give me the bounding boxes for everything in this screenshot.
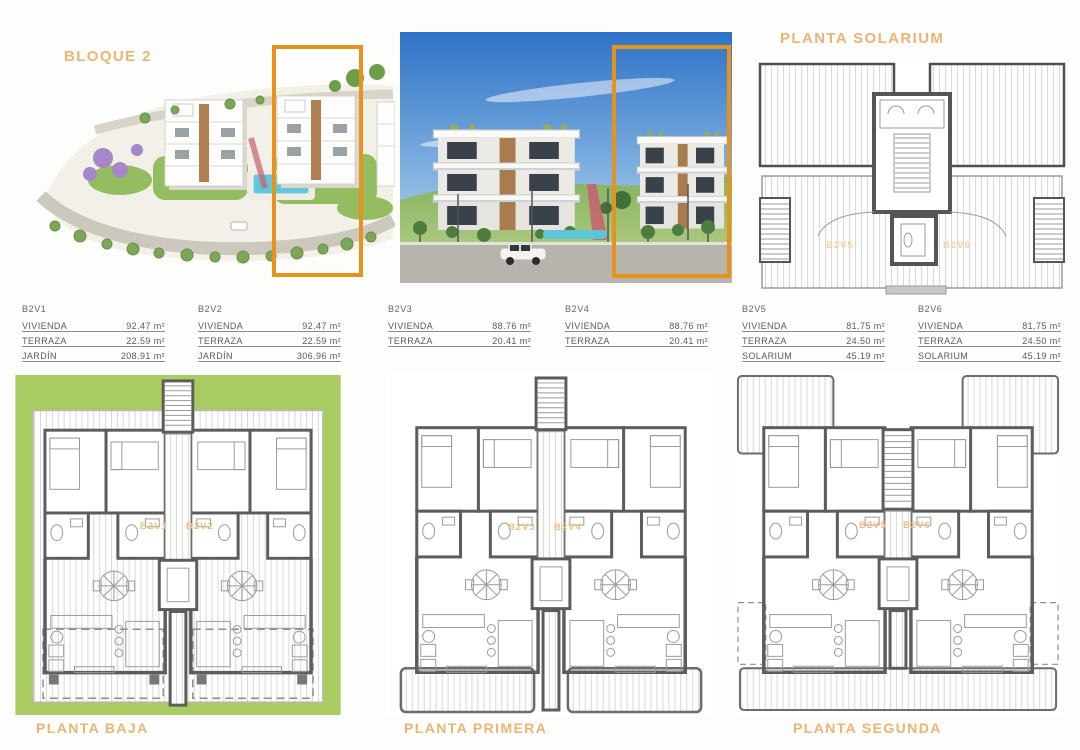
table-row-value: 45.19 m²: [846, 351, 885, 361]
solarium-plan-panel: B2V5 B2V6: [758, 58, 1066, 298]
unit-table-b2v2: B2V2VIVIENDA92.47 m²TERRAZA22.59 m²JARDÍ…: [198, 304, 341, 362]
unit-table-b2v6: B2V6VIVIENDA81.75 m²TERRAZA24.50 m²SOLAR…: [918, 304, 1061, 362]
table-row: VIVIENDA92.47 m²: [22, 317, 165, 332]
table-row: SOLARIUM45.19 m²: [918, 347, 1061, 362]
table-row: VIVIENDA88.76 m²: [565, 317, 708, 332]
floor-plan-segunda: B2V5 B2V6: [733, 372, 1063, 715]
table-row-label: VIVIENDA: [198, 321, 243, 331]
table-row: VIVIENDA81.75 m²: [742, 317, 885, 332]
table-row-value: 92.47 m²: [126, 321, 165, 331]
highlight-box-aerial: [272, 45, 363, 277]
table-row-label: TERRAZA: [742, 336, 787, 346]
table-row-value: 81.75 m²: [846, 321, 885, 331]
table-row: TERRAZA22.59 m²: [22, 332, 165, 347]
primera-unit-left: B2V3: [508, 522, 536, 533]
baja-unit-left: B2V1: [140, 521, 168, 532]
car: [231, 222, 247, 230]
table-row: VIVIENDA88.76 m²: [388, 317, 531, 332]
table-row-label: TERRAZA: [198, 336, 243, 346]
unit-table-header: B2V5: [742, 304, 885, 314]
plan-baja-title: PLANTA BAJA: [36, 720, 149, 736]
table-row-label: VIVIENDA: [918, 321, 963, 331]
floor-plan-baja: B2V1 B2V2: [14, 375, 342, 715]
unit-table-header: B2V3: [388, 304, 531, 314]
unit-table-b2v3: B2V3VIVIENDA88.76 m²TERRAZA20.41 m²: [388, 304, 531, 347]
table-row-label: VIVIENDA: [565, 321, 610, 331]
unit-table-b2v1: B2V1VIVIENDA92.47 m²TERRAZA22.59 m²JARDÍ…: [22, 304, 165, 362]
plan-primera-title: PLANTA PRIMERA: [404, 720, 547, 736]
table-row-label: VIVIENDA: [388, 321, 433, 331]
aerial-render: [25, 38, 395, 290]
table-row-label: JARDÍN: [198, 351, 233, 361]
solarium-title: PLANTA SOLARIUM: [780, 30, 944, 47]
table-row-label: TERRAZA: [22, 336, 67, 346]
table-row: JARDÍN306.96 m²: [198, 347, 341, 362]
table-row-value: 22.59 m²: [302, 336, 341, 346]
table-row-label: TERRAZA: [565, 336, 610, 346]
table-row-value: 81.75 m²: [1022, 321, 1061, 331]
table-row: TERRAZA24.50 m²: [742, 332, 885, 347]
table-row-value: 92.47 m²: [302, 321, 341, 331]
table-row: TERRAZA24.50 m²: [918, 332, 1061, 347]
table-row-value: 306.96 m²: [297, 351, 341, 361]
unit-table-header: B2V6: [918, 304, 1061, 314]
highlight-box-photo: [612, 45, 731, 278]
building-block-right-edge: [377, 102, 395, 186]
table-row-value: 45.19 m²: [1022, 351, 1061, 361]
table-row-label: VIVIENDA: [742, 321, 787, 331]
floor-plan-primera-drawing: [386, 372, 716, 715]
table-row: TERRAZA22.59 m²: [198, 332, 341, 347]
table-row-value: 88.76 m²: [492, 321, 531, 331]
building-left: [433, 124, 579, 230]
table-row-value: 24.50 m²: [846, 336, 885, 346]
table-row-value: 208.91 m²: [121, 351, 165, 361]
table-row-label: JARDÍN: [22, 351, 57, 361]
table-row: VIVIENDA81.75 m²: [918, 317, 1061, 332]
table-row: TERRAZA20.41 m²: [565, 332, 708, 347]
table-row: SOLARIUM45.19 m²: [742, 347, 885, 362]
table-row-label: SOLARIUM: [918, 351, 968, 361]
floor-plan-baja-drawing: [14, 375, 342, 715]
solarium-unit-left: B2V5: [826, 240, 854, 251]
table-row-label: SOLARIUM: [742, 351, 792, 361]
baja-unit-right: B2V2: [186, 521, 214, 532]
table-row-value: 20.41 m²: [492, 336, 531, 346]
street-render: [400, 32, 732, 283]
unit-table-b2v5: B2V5VIVIENDA81.75 m²TERRAZA24.50 m²SOLAR…: [742, 304, 885, 362]
solarium-unit-right: B2V6: [943, 240, 971, 251]
table-row-value: 20.41 m²: [669, 336, 708, 346]
table-row-value: 22.59 m²: [126, 336, 165, 346]
plan-segunda-title: PLANTA SEGUNDA: [793, 720, 942, 736]
table-row: JARDÍN208.91 m²: [22, 347, 165, 362]
segunda-unit-left: B2V5: [859, 520, 887, 531]
pool: [543, 230, 607, 239]
unit-table-b2v4: B2V4VIVIENDA88.76 m²TERRAZA20.41 m²: [565, 304, 708, 347]
table-row-label: TERRAZA: [388, 336, 433, 346]
primera-unit-right: B2V4: [554, 522, 582, 533]
table-row: TERRAZA20.41 m²: [388, 332, 531, 347]
table-row: VIVIENDA92.47 m²: [198, 317, 341, 332]
brochure-page: BLOQUE 2: [0, 0, 1080, 750]
floor-plan-segunda-drawing: [733, 372, 1063, 715]
segunda-unit-right: B2V6: [903, 520, 931, 531]
table-row-label: TERRAZA: [918, 336, 963, 346]
unit-table-header: B2V2: [198, 304, 341, 314]
table-row-value: 88.76 m²: [669, 321, 708, 331]
table-row-value: 24.50 m²: [1022, 336, 1061, 346]
solarium-plan-drawing: [758, 58, 1066, 298]
unit-table-header: B2V1: [22, 304, 165, 314]
floor-plan-primera: B2V3 B2V4: [386, 372, 716, 715]
table-row-label: VIVIENDA: [22, 321, 67, 331]
unit-table-header: B2V4: [565, 304, 708, 314]
